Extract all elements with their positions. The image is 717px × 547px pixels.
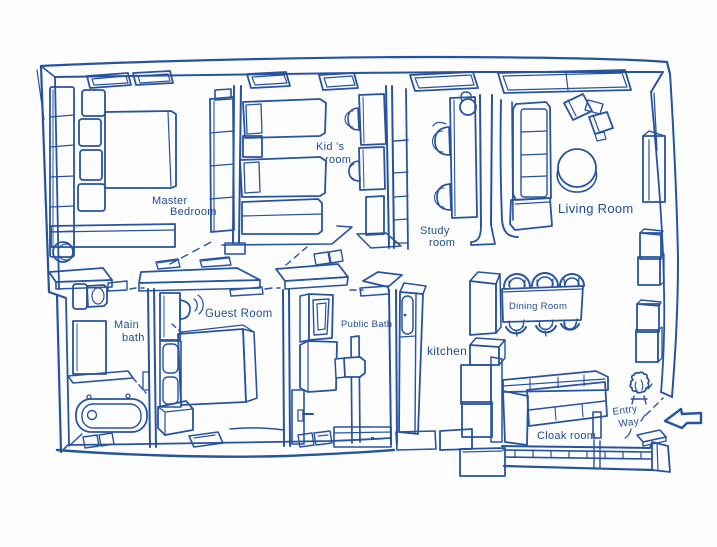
svg-text:Bedroom: Bedroom bbox=[170, 206, 217, 218]
svg-text:bath: bath bbox=[122, 332, 145, 344]
svg-text:Main: Main bbox=[114, 319, 139, 331]
svg-text:Way: Way bbox=[618, 416, 640, 430]
svg-text:Dining Room: Dining Room bbox=[509, 301, 567, 312]
svg-text:Kid 's: Kid 's bbox=[316, 141, 345, 153]
svg-text:Study: Study bbox=[420, 225, 450, 237]
svg-text:room: room bbox=[325, 154, 351, 166]
svg-text:Guest Room: Guest Room bbox=[205, 308, 273, 320]
svg-text:Cloak room: Cloak room bbox=[537, 430, 596, 442]
svg-text:room: room bbox=[429, 237, 455, 249]
svg-text:Public Bath: Public Bath bbox=[341, 319, 392, 330]
svg-text:kitchen: kitchen bbox=[427, 344, 467, 358]
svg-text:Living Room: Living Room bbox=[558, 201, 634, 216]
